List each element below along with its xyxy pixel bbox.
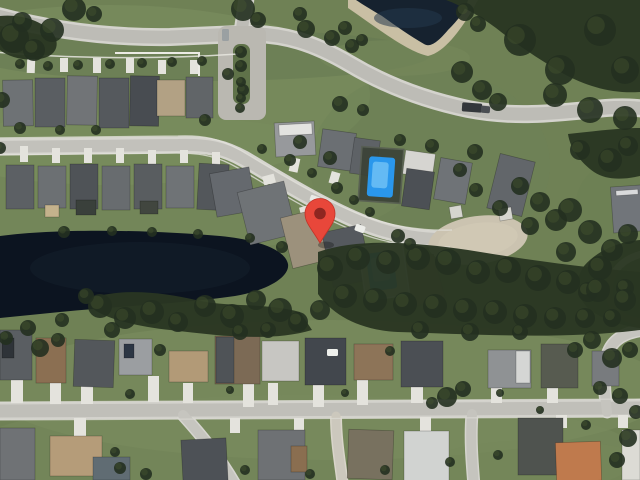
tree-highlight: [339, 22, 347, 30]
tree-highlight: [438, 251, 452, 265]
tree-highlight: [42, 20, 55, 33]
tree-highlight: [308, 169, 314, 175]
tree-highlight: [241, 466, 247, 472]
driveway: [60, 58, 68, 72]
tree-highlight: [285, 155, 292, 162]
driveway: [11, 379, 23, 403]
tree-highlight: [587, 16, 605, 34]
tree-highlight: [306, 470, 312, 476]
house-roof: [434, 158, 473, 205]
house-roof: [140, 201, 158, 214]
house-roof: [305, 338, 346, 385]
tree-highlight: [600, 150, 613, 163]
house-roof: [124, 344, 134, 358]
tree-highlight: [56, 314, 64, 322]
tree-highlight: [381, 466, 387, 472]
house-roof: [186, 77, 213, 118]
tree-highlight: [126, 390, 132, 396]
tree-highlight: [594, 382, 602, 390]
tree-highlight: [155, 345, 162, 352]
driveway: [52, 148, 60, 163]
tree-highlight: [196, 297, 208, 309]
tree-highlight: [44, 62, 50, 68]
tree-highlight: [472, 17, 481, 26]
car: [462, 102, 483, 112]
tree-highlight: [142, 302, 155, 315]
swimming-pool-highlight: [371, 161, 389, 188]
house-roof: [157, 80, 185, 116]
tree-highlight: [299, 21, 309, 31]
tree-highlight: [342, 390, 346, 394]
tree-highlight: [22, 321, 31, 330]
tree-highlight: [80, 289, 89, 298]
car: [222, 29, 229, 41]
tree-highlight: [200, 115, 207, 122]
tree-highlight: [558, 272, 571, 285]
tree-highlight: [252, 13, 261, 22]
tree-highlight: [88, 7, 97, 16]
tree-highlight: [108, 227, 114, 233]
tree-highlight: [358, 105, 365, 112]
tree-highlight: [590, 258, 603, 271]
driveway: [268, 383, 278, 405]
satellite-map[interactable]: [0, 0, 640, 480]
house-roof: [102, 166, 130, 210]
driveway: [116, 148, 124, 163]
tree-highlight: [569, 343, 578, 352]
tree-highlight: [413, 322, 423, 332]
driveway: [50, 382, 61, 404]
tree-highlight: [357, 35, 364, 42]
car: [481, 106, 490, 114]
house-roof: [616, 189, 638, 196]
tree-highlight: [588, 280, 601, 293]
tree-highlight: [523, 218, 533, 228]
driveway: [126, 58, 134, 73]
driveway: [74, 418, 86, 436]
tree-highlight: [332, 183, 339, 190]
tree-highlight: [262, 323, 271, 332]
tree-highlight: [395, 294, 408, 307]
tree-highlight: [468, 262, 481, 275]
tree-highlight: [14, 14, 25, 25]
tree-highlight: [194, 230, 200, 236]
tree-highlight: [494, 201, 503, 210]
house-roof: [169, 351, 208, 382]
tree-highlight: [514, 325, 523, 334]
tree-highlight: [620, 226, 631, 237]
house-roof: [401, 168, 434, 210]
house-roof: [449, 205, 463, 219]
tree-highlight: [469, 145, 478, 154]
tree-highlight: [16, 60, 22, 66]
tree-highlight: [513, 178, 523, 188]
tree-highlight: [515, 306, 528, 319]
tree-highlight: [620, 138, 631, 149]
location-pin-dot[interactable]: [314, 208, 326, 220]
tree-highlight: [236, 47, 243, 54]
tree-highlight: [611, 453, 620, 462]
tree-highlight: [458, 4, 468, 14]
tree-highlight: [168, 58, 174, 64]
house-roof: [401, 341, 443, 387]
tree-highlight: [59, 227, 66, 234]
tree-highlight: [378, 252, 391, 265]
tree-highlight: [366, 208, 372, 214]
driveway: [183, 383, 193, 403]
driveway: [158, 60, 166, 74]
tree-highlight: [585, 332, 595, 342]
tree-highlight: [491, 94, 501, 104]
tree-highlight: [392, 230, 400, 238]
tree-highlight: [615, 108, 628, 121]
driveway: [190, 60, 198, 74]
water-sheen: [374, 8, 442, 28]
tree-highlight: [560, 200, 573, 213]
driveway: [212, 152, 220, 165]
tree-highlight: [603, 241, 615, 253]
tree-highlight: [237, 78, 243, 84]
house-roof: [216, 337, 234, 383]
tree-highlight: [141, 469, 148, 476]
tree-highlight: [236, 104, 242, 110]
bottom-road: [0, 408, 640, 411]
tree-highlight: [234, 325, 243, 334]
tree-highlight: [312, 302, 323, 313]
tree-highlight: [334, 97, 343, 106]
tree-highlight: [15, 123, 22, 130]
house-roof: [555, 441, 601, 480]
tree-highlight: [545, 85, 558, 98]
tree-highlight: [248, 292, 259, 303]
tree-highlight: [446, 458, 452, 464]
house-roof: [45, 205, 59, 217]
driveway: [20, 146, 28, 162]
map-canvas[interactable]: [0, 0, 640, 480]
tree-highlight: [198, 57, 204, 63]
tree-highlight: [532, 194, 543, 205]
tree-highlight: [614, 58, 629, 73]
driveway: [618, 415, 628, 428]
driveway: [243, 382, 254, 407]
tree-highlight: [405, 239, 412, 246]
tree-highlight: [474, 82, 485, 93]
tree-highlight: [497, 390, 501, 394]
tree-highlight: [463, 324, 473, 334]
tree-highlight: [624, 343, 633, 352]
house-roof: [291, 446, 307, 472]
tree-highlight: [507, 26, 525, 44]
house-roof: [262, 341, 299, 381]
tree-highlight: [494, 451, 500, 457]
tree-highlight: [618, 280, 628, 290]
tree-highlight: [439, 389, 450, 400]
tree-highlight: [290, 314, 301, 325]
tree-highlight: [148, 228, 154, 234]
tree-highlight: [33, 340, 43, 350]
tree-highlight: [537, 407, 541, 411]
tree-highlight: [350, 196, 356, 202]
house-roof: [35, 78, 65, 127]
tree-highlight: [365, 290, 378, 303]
car: [327, 349, 338, 356]
driveway: [148, 150, 156, 164]
driveway: [420, 417, 431, 433]
house-roof: [130, 76, 160, 126]
tree-highlight: [457, 382, 466, 391]
driveway: [93, 58, 101, 73]
tree-highlight: [621, 430, 631, 440]
tree-highlight: [386, 347, 392, 353]
tree-highlight: [548, 57, 565, 74]
tree-highlight: [115, 463, 122, 470]
tree-highlight: [236, 61, 243, 68]
water-sheen: [30, 242, 250, 294]
tree-highlight: [453, 63, 465, 75]
tree-highlight: [106, 60, 112, 66]
tree-highlight: [395, 135, 402, 142]
tree-highlight: [294, 8, 302, 16]
tree-highlight: [558, 244, 569, 255]
tree-highlight: [580, 222, 593, 235]
tree-highlight: [170, 314, 181, 325]
house-roof: [38, 166, 66, 208]
tree-highlight: [454, 164, 462, 172]
tree-highlight: [111, 448, 117, 454]
driveway: [180, 150, 188, 163]
tree-highlight: [498, 259, 512, 273]
house-roof: [279, 123, 313, 136]
house-roof: [181, 438, 228, 480]
driveway: [148, 376, 159, 402]
house-roof: [99, 78, 129, 128]
tree-highlight: [426, 140, 434, 148]
tree-highlight: [326, 31, 335, 40]
house-roof: [404, 431, 449, 480]
house-roof: [6, 165, 34, 209]
house-roof: [166, 166, 194, 208]
tree-highlight: [52, 334, 60, 342]
tree-highlight: [320, 257, 334, 271]
tree-highlight: [227, 387, 231, 391]
tree-highlight: [604, 350, 615, 361]
tree-highlight: [74, 61, 80, 67]
tree-highlight: [470, 184, 478, 192]
tree-highlight: [246, 234, 252, 240]
house-roof: [76, 200, 96, 215]
tree-highlight: [116, 309, 128, 321]
tree-highlight: [92, 126, 98, 132]
tree-highlight: [485, 302, 498, 315]
tree-highlight: [630, 406, 638, 414]
tree-highlight: [582, 421, 588, 427]
tree-highlight: [237, 94, 243, 100]
house-roof: [0, 428, 35, 480]
tree-highlight: [335, 286, 348, 299]
tree-highlight: [0, 332, 8, 340]
tree-highlight: [546, 309, 558, 321]
tree-highlight: [425, 296, 438, 309]
tree-highlight: [106, 323, 115, 332]
south-street-3: [471, 414, 474, 480]
tree-highlight: [577, 310, 588, 321]
driveway: [84, 148, 92, 163]
tree-highlight: [25, 41, 37, 53]
tree-highlight: [277, 242, 284, 249]
tree-highlight: [258, 145, 264, 151]
tree-highlight: [294, 136, 302, 144]
driveway: [357, 380, 368, 405]
tree-highlight: [346, 40, 354, 48]
house-roof: [73, 339, 115, 387]
driveway: [230, 418, 240, 433]
house-roof: [516, 351, 530, 383]
tree-highlight: [572, 142, 583, 153]
tree-highlight: [547, 211, 559, 223]
tree-highlight: [528, 267, 542, 281]
tree-highlight: [614, 389, 623, 398]
tree-highlight: [427, 398, 434, 405]
tree-highlight: [222, 306, 235, 319]
tree-highlight: [616, 291, 628, 303]
tree-highlight: [348, 248, 361, 261]
driveway: [313, 382, 324, 407]
tree-highlight: [270, 300, 283, 313]
house-roof: [67, 76, 98, 126]
tree-highlight: [223, 69, 230, 76]
tree-highlight: [580, 99, 594, 113]
tree-highlight: [324, 152, 332, 160]
tree-highlight: [455, 300, 468, 313]
tree-highlight: [56, 126, 62, 132]
tree-highlight: [605, 310, 615, 320]
tree-highlight: [138, 59, 144, 65]
